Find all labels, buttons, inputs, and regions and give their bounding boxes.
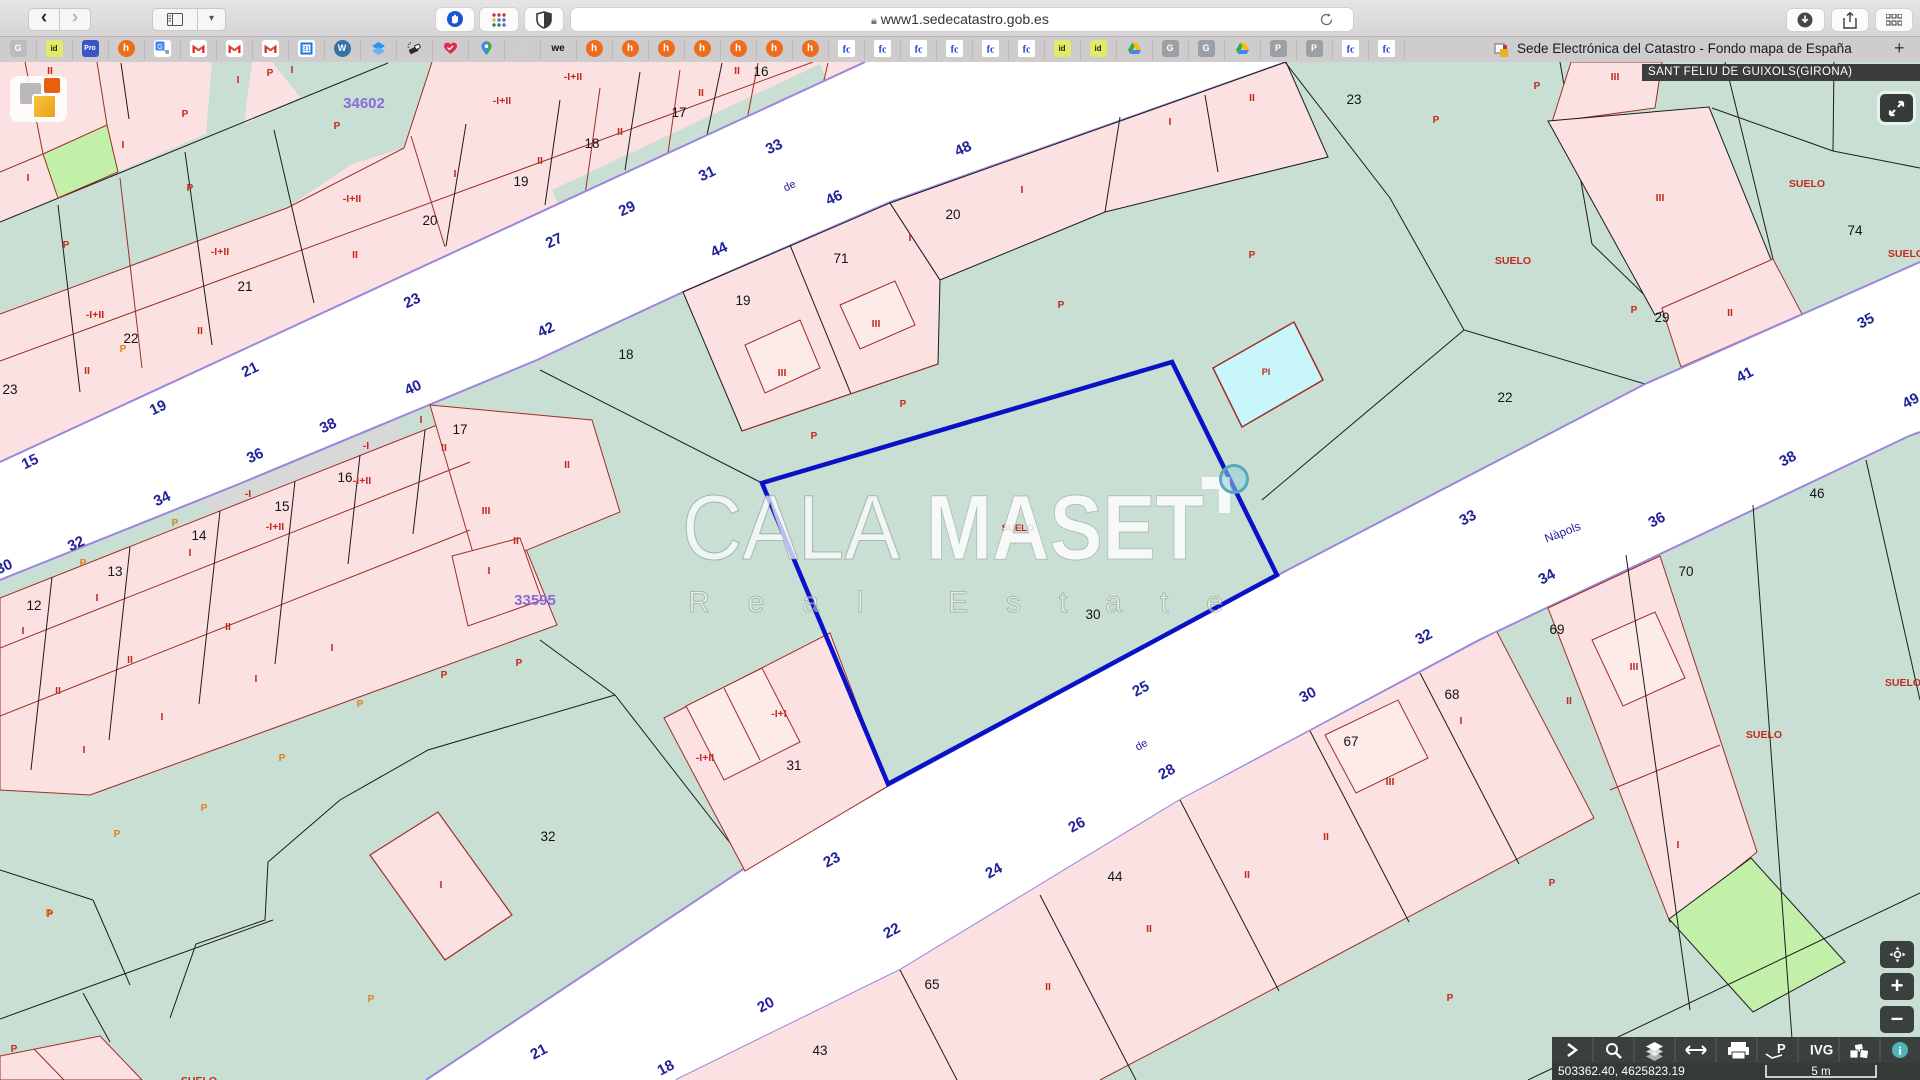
svg-text:17: 17 xyxy=(452,422,467,437)
svg-text:P: P xyxy=(46,908,53,919)
svg-text:P: P xyxy=(80,558,87,569)
svg-text:P: P xyxy=(114,829,121,840)
svg-text:SUELO: SUELO xyxy=(1495,255,1531,267)
svg-text:P: P xyxy=(182,109,189,120)
svg-text:P: P xyxy=(811,431,818,442)
svg-text:-I+II: -I+II xyxy=(211,246,229,258)
svg-text:III: III xyxy=(1386,776,1395,788)
svg-text:P: P xyxy=(1058,300,1065,311)
svg-text:67: 67 xyxy=(1343,734,1358,749)
svg-text:fc: fc xyxy=(842,45,850,56)
svg-text:P: P xyxy=(187,183,194,194)
svg-text:5 m: 5 m xyxy=(1811,1066,1830,1078)
svg-text:I: I xyxy=(161,711,164,723)
svg-text:I: I xyxy=(291,64,294,76)
svg-text:SUELO: SUELO xyxy=(1888,248,1920,260)
svg-text:44: 44 xyxy=(1107,869,1123,884)
svg-text:43: 43 xyxy=(812,1043,827,1058)
svg-text:-I+I: -I+I xyxy=(771,708,787,720)
svg-text:P: P xyxy=(172,518,179,529)
svg-text:-I+II: -I+II xyxy=(353,475,371,487)
svg-text:P: P xyxy=(1534,81,1541,92)
svg-text:I: I xyxy=(440,879,443,891)
svg-text:65: 65 xyxy=(924,977,939,992)
svg-text:P: P xyxy=(900,399,907,410)
svg-text:II: II xyxy=(225,621,231,633)
svg-text:-I+II: -I+II xyxy=(696,752,714,764)
svg-text:II: II xyxy=(513,535,519,547)
svg-text:P: P xyxy=(516,658,523,669)
svg-text:II: II xyxy=(352,249,358,261)
svg-text:I: I xyxy=(1677,839,1680,851)
svg-text:74: 74 xyxy=(1847,223,1863,238)
svg-text:14: 14 xyxy=(191,528,207,543)
svg-text:fc: fc xyxy=(1022,45,1030,56)
svg-text:P: P xyxy=(1433,115,1440,126)
svg-text:69: 69 xyxy=(1549,622,1564,637)
svg-text:71: 71 xyxy=(833,251,848,266)
svg-text:20: 20 xyxy=(945,207,960,222)
svg-text:I: I xyxy=(420,414,423,426)
svg-text:I: I xyxy=(27,172,30,184)
svg-text:II: II xyxy=(734,65,740,77)
svg-text:P: P xyxy=(1249,250,1256,261)
svg-text:II: II xyxy=(1244,869,1250,881)
svg-text:31: 31 xyxy=(302,46,310,53)
svg-text:P: P xyxy=(11,1044,18,1055)
svg-text:II: II xyxy=(564,459,570,471)
svg-text:-I+II: -I+II xyxy=(86,309,104,321)
svg-text:I: I xyxy=(255,673,258,685)
svg-text:I: I xyxy=(1169,116,1172,128)
svg-text:17: 17 xyxy=(671,105,686,120)
svg-text:46: 46 xyxy=(1809,486,1824,501)
svg-text:20: 20 xyxy=(422,213,437,228)
svg-text:I: I xyxy=(237,74,240,86)
svg-text:III: III xyxy=(1630,661,1639,673)
svg-text:I: I xyxy=(122,139,125,151)
svg-text:SUELO: SUELO xyxy=(181,1075,217,1080)
svg-text:II: II xyxy=(537,155,543,167)
svg-text:68: 68 xyxy=(1444,687,1459,702)
svg-text:II: II xyxy=(197,325,203,337)
svg-text:II: II xyxy=(127,654,133,666)
svg-text:III: III xyxy=(872,318,881,330)
svg-text:I: I xyxy=(488,565,491,577)
svg-text:18: 18 xyxy=(584,136,599,151)
svg-text:CALA: CALA xyxy=(682,477,901,579)
svg-text:II: II xyxy=(55,685,61,697)
svg-text:P: P xyxy=(63,240,70,251)
svg-text:SUELO: SUELO xyxy=(1885,677,1920,689)
svg-text:P: P xyxy=(279,753,286,764)
svg-text:I: I xyxy=(22,625,25,637)
svg-text:P: P xyxy=(334,121,341,132)
svg-text:34602: 34602 xyxy=(343,95,385,112)
svg-text:I: I xyxy=(331,642,334,654)
svg-text:II: II xyxy=(1146,923,1152,935)
svg-text:II: II xyxy=(1045,981,1051,993)
svg-text:13: 13 xyxy=(107,564,122,579)
svg-text:19: 19 xyxy=(735,293,750,308)
svg-text:I: I xyxy=(83,744,86,756)
svg-text:P: P xyxy=(1631,305,1638,316)
svg-text:II: II xyxy=(1249,92,1255,104)
svg-text:fc: fc xyxy=(878,45,886,56)
svg-text:P: P xyxy=(368,994,375,1005)
svg-text:II: II xyxy=(698,87,704,99)
svg-text:-I+II: -I+II xyxy=(343,193,361,205)
svg-text:P: P xyxy=(441,670,448,681)
svg-text:MASET: MASET xyxy=(926,477,1204,579)
svg-text:I: I xyxy=(1460,715,1463,727)
svg-text:-I: -I xyxy=(245,488,251,500)
svg-text:-I: -I xyxy=(363,440,369,452)
svg-text:P: P xyxy=(357,699,364,710)
svg-text:12: 12 xyxy=(26,598,41,613)
svg-text:SUELO: SUELO xyxy=(1789,178,1825,190)
svg-text:fc: fc xyxy=(1346,45,1354,56)
svg-text:fc: fc xyxy=(1382,45,1390,56)
svg-text:P: P xyxy=(120,344,127,355)
svg-text:fc: fc xyxy=(950,45,958,56)
svg-text:G: G xyxy=(157,44,162,51)
svg-text:-I+II: -I+II xyxy=(493,95,511,107)
svg-text:-I+II: -I+II xyxy=(564,71,582,83)
svg-text:P: P xyxy=(1549,878,1556,889)
svg-text:31: 31 xyxy=(786,758,801,773)
svg-text:30: 30 xyxy=(1085,607,1100,622)
svg-text:fc: fc xyxy=(914,45,922,56)
svg-text:II: II xyxy=(1727,307,1733,319)
svg-text:16: 16 xyxy=(753,64,768,79)
svg-text:19: 19 xyxy=(513,174,528,189)
svg-text:II: II xyxy=(441,442,447,454)
svg-text:21: 21 xyxy=(237,279,252,294)
svg-text:23: 23 xyxy=(2,382,17,397)
svg-text:23: 23 xyxy=(1346,92,1361,107)
svg-text:22: 22 xyxy=(1497,390,1512,405)
svg-text:II: II xyxy=(617,126,623,138)
svg-text:II: II xyxy=(84,365,90,377)
svg-text:I: I xyxy=(454,168,457,180)
svg-text:IVG: IVG xyxy=(1810,1043,1833,1058)
svg-text:I: I xyxy=(189,547,192,559)
svg-text:fc: fc xyxy=(986,45,994,56)
svg-text:P: P xyxy=(1447,993,1454,1004)
svg-text:P: P xyxy=(267,68,274,79)
svg-text:33595: 33595 xyxy=(514,592,556,609)
svg-text:P: P xyxy=(201,803,208,814)
svg-text:18: 18 xyxy=(618,347,633,362)
svg-text:16: 16 xyxy=(337,470,352,485)
svg-text:32: 32 xyxy=(540,829,555,844)
svg-text:I: I xyxy=(96,592,99,604)
svg-text:P: P xyxy=(1777,1041,1786,1056)
svg-text:II: II xyxy=(1566,695,1572,707)
svg-text:PI: PI xyxy=(1262,367,1271,377)
svg-text:II: II xyxy=(1323,831,1329,843)
svg-text:-I+II: -I+II xyxy=(266,521,284,533)
svg-text:III: III xyxy=(482,505,491,517)
svg-text:III: III xyxy=(1611,71,1620,83)
svg-text:29: 29 xyxy=(1654,310,1669,325)
svg-text:SUELO: SUELO xyxy=(1746,729,1782,741)
svg-text:70: 70 xyxy=(1678,564,1693,579)
svg-text:15: 15 xyxy=(274,499,289,514)
svg-text:III: III xyxy=(778,367,787,379)
svg-text:I: I xyxy=(1021,184,1024,196)
svg-text:III: III xyxy=(1656,192,1665,204)
svg-text:I: I xyxy=(909,232,912,244)
